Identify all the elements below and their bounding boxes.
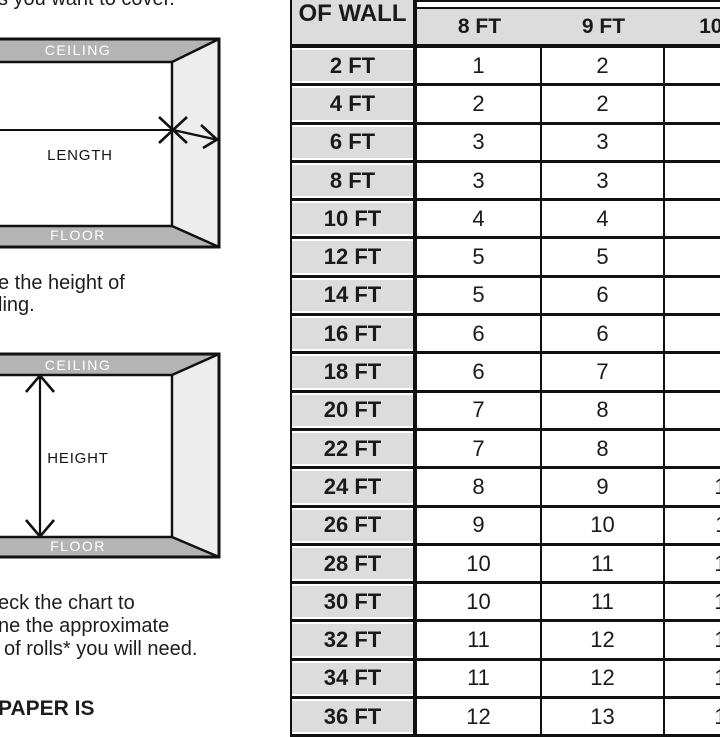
table-row: 24 FT 8 9 10 <box>292 469 720 507</box>
cell-value: 11 <box>417 622 542 657</box>
height-label: HEIGHT <box>47 450 108 467</box>
cell-value: 3 <box>542 163 665 198</box>
table-row: 18 FT 6 7 8 <box>292 354 720 392</box>
intro-text-fragment: s you want to cover. <box>0 0 175 10</box>
cell-value: 4 <box>665 163 720 198</box>
table-row: 14 FT 5 6 6 <box>292 278 720 316</box>
row-label: 26 FT <box>292 508 417 543</box>
floor-label: FLOOR <box>50 538 106 554</box>
cell-value: 6 <box>417 316 542 351</box>
cell-value: 9 <box>417 508 542 543</box>
cell-value: 6 <box>542 278 665 313</box>
row-label: 8 FT <box>292 163 417 198</box>
cell-value: 8 <box>542 393 665 428</box>
row-label: 6 FT <box>292 125 417 160</box>
table-row: 36 FT 12 13 14 <box>292 699 720 737</box>
col-header-8ft: 8 FT <box>417 9 542 44</box>
ceiling-label: CEILING <box>45 357 112 373</box>
row-label: 4 FT <box>292 86 417 121</box>
cell-value: 7 <box>417 431 542 466</box>
row-label: 16 FT <box>292 316 417 351</box>
cell-value: 10 <box>417 584 542 619</box>
cell-value: 7 <box>417 393 542 428</box>
cell-value: 13 <box>665 661 720 696</box>
row-label: 18 FT <box>292 354 417 389</box>
table-header: OF WALL 8 FT 9 FT 10 FT <box>292 0 720 44</box>
cell-value: 4 <box>542 201 665 236</box>
table-body: 2 FT 1 2 2 4 FT 2 2 2 6 FT 3 3 3 8 FT 3 … <box>292 48 720 737</box>
front-wall <box>0 62 172 226</box>
cell-value: 6 <box>665 239 720 274</box>
cell-value: 2 <box>542 86 665 121</box>
floor-label: FLOOR <box>50 227 106 243</box>
row-label: 32 FT <box>292 622 417 657</box>
row-label: 34 FT <box>292 661 417 696</box>
cell-value: 8 <box>665 354 720 389</box>
cell-value: 1 <box>417 48 542 83</box>
row-label: 2 FT <box>292 48 417 83</box>
table-row: 12 FT 5 5 6 <box>292 239 720 277</box>
table-row: 16 FT 6 6 7 <box>292 316 720 354</box>
length-label: LENGTH <box>47 147 113 164</box>
table-row: 8 FT 3 3 4 <box>292 163 720 201</box>
cell-value: 6 <box>665 278 720 313</box>
cell-value: 2 <box>542 48 665 83</box>
cell-value: 14 <box>665 699 720 734</box>
row-label: 28 FT <box>292 546 417 581</box>
cell-value: 7 <box>542 354 665 389</box>
cell-value: 13 <box>665 622 720 657</box>
cell-value: 12 <box>542 661 665 696</box>
rolls-estimate-table: OF WALL 8 FT 9 FT 10 FT 2 FT 1 2 2 4 FT … <box>290 0 720 737</box>
table-row: 6 FT 3 3 3 <box>292 125 720 163</box>
table-row: 2 FT 1 2 2 <box>292 48 720 86</box>
cell-value: 10 <box>542 508 665 543</box>
row-label: 12 FT <box>292 239 417 274</box>
cell-value: 9 <box>665 393 720 428</box>
row-header-title: OF WALL <box>299 0 407 27</box>
cell-value: 7 <box>665 316 720 351</box>
row-label: 30 FT <box>292 584 417 619</box>
cell-value: 10 <box>417 546 542 581</box>
cell-value: 5 <box>542 239 665 274</box>
col-header-9ft: 9 FT <box>542 9 665 44</box>
table-row: 34 FT 11 12 13 <box>292 661 720 699</box>
cell-value: 3 <box>542 125 665 160</box>
cell-value: 11 <box>542 546 665 581</box>
table-row: 4 FT 2 2 2 <box>292 86 720 124</box>
table-row: 10 FT 4 4 5 <box>292 201 720 239</box>
cell-value: 8 <box>542 431 665 466</box>
cell-value: 3 <box>417 125 542 160</box>
cell-value: 2 <box>417 86 542 121</box>
cell-value: 3 <box>665 125 720 160</box>
table-row: 22 FT 7 8 9 <box>292 431 720 469</box>
cell-value: 11 <box>417 661 542 696</box>
row-label: 24 FT <box>292 469 417 504</box>
length-diagram: CEILING FLOOR LENGTH <box>0 36 225 251</box>
cell-value: 11 <box>542 584 665 619</box>
cell-value: 13 <box>542 699 665 734</box>
cell-value: 2 <box>665 48 720 83</box>
clipped-header-row <box>417 0 720 9</box>
cell-value: 6 <box>417 354 542 389</box>
chart-instruction-fragment: eck the chart tone the approximateof rol… <box>0 592 197 661</box>
cell-value: 9 <box>665 431 720 466</box>
table-row: 30 FT 10 11 12 <box>292 584 720 622</box>
table-row: 28 FT 10 11 12 <box>292 546 720 584</box>
row-label: 10 FT <box>292 201 417 236</box>
height-diagram: CEILING FLOOR HEIGHT <box>0 350 225 562</box>
cell-value: 5 <box>417 278 542 313</box>
side-wall <box>172 354 219 557</box>
column-headers: 8 FT 9 FT 10 FT <box>417 9 720 44</box>
row-label: 20 FT <box>292 393 417 428</box>
cell-value: 3 <box>417 163 542 198</box>
cell-value: 11 <box>665 508 720 543</box>
cell-value: 12 <box>665 584 720 619</box>
row-label: 36 FT <box>292 699 417 734</box>
row-header-title-cell: OF WALL <box>292 0 417 44</box>
ceiling-label: CEILING <box>45 42 112 58</box>
cell-value: 12 <box>542 622 665 657</box>
cell-value: 10 <box>665 469 720 504</box>
column-header-area: 8 FT 9 FT 10 FT <box>417 0 720 44</box>
cell-value: 6 <box>542 316 665 351</box>
section-heading-fragment: PAPER IS <box>0 698 94 720</box>
height-instruction-fragment: e the height ofling. <box>0 272 125 316</box>
cell-value: 2 <box>665 86 720 121</box>
row-label: 14 FT <box>292 278 417 313</box>
table-row: 32 FT 11 12 13 <box>292 622 720 660</box>
table-row: 26 FT 9 10 11 <box>292 508 720 546</box>
cell-value: 12 <box>417 699 542 734</box>
cell-value: 9 <box>542 469 665 504</box>
cell-value: 4 <box>417 201 542 236</box>
cell-value: 12 <box>665 546 720 581</box>
row-label: 22 FT <box>292 431 417 466</box>
cell-value: 8 <box>417 469 542 504</box>
cell-value: 5 <box>417 239 542 274</box>
table-row: 20 FT 7 8 9 <box>292 393 720 431</box>
col-header-10ft: 10 FT <box>665 9 720 44</box>
cell-value: 5 <box>665 201 720 236</box>
